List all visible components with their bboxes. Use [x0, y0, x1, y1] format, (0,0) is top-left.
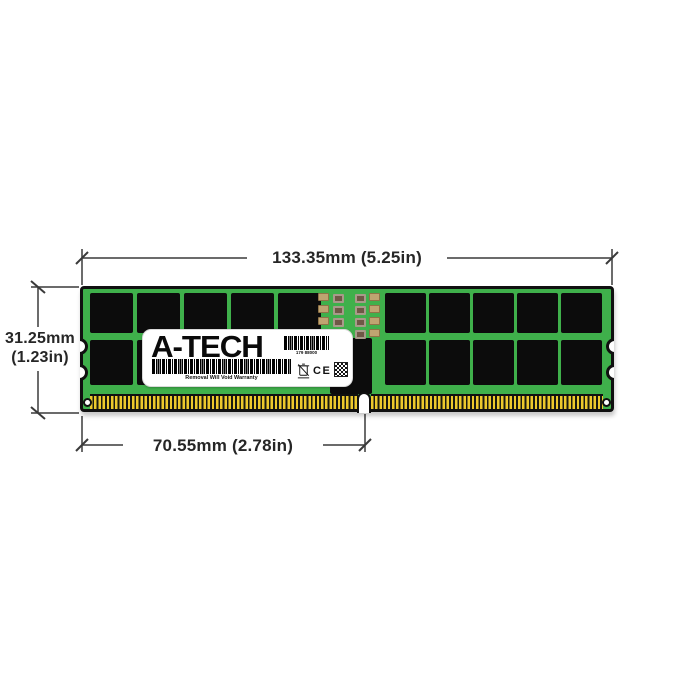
memory-chip [429, 293, 470, 333]
smd-component [369, 293, 380, 301]
smd-component [355, 294, 366, 303]
memory-chip [385, 340, 426, 385]
memory-chip [561, 293, 602, 333]
ce-mark: CE [313, 365, 331, 377]
memory-chip [517, 293, 558, 333]
mounting-hole-left [83, 398, 92, 407]
smd-component [318, 317, 329, 325]
smd-component [355, 330, 366, 339]
product-dimension-diagram: 133.35mm (5.25in) 31.25mm (1.23in) 70.55… [0, 0, 700, 700]
smd-component [369, 305, 380, 313]
height-dimension-label: 31.25mm (1.23in) [1, 329, 79, 367]
memory-chip [561, 340, 602, 385]
smd-component [318, 293, 329, 301]
memory-chip [137, 293, 180, 333]
qr-code-icon [334, 362, 348, 377]
memory-chip [473, 340, 514, 385]
warranty-text: Removal Will Void Warranty [152, 375, 291, 381]
memory-chip [385, 293, 426, 333]
weee-bin-icon [296, 363, 311, 379]
memory-chip [184, 293, 227, 333]
memory-chip [90, 340, 133, 385]
product-sticker: A-TECH 179 88000 Removal Will Void Warra… [142, 329, 353, 387]
smd-component [333, 294, 344, 303]
height-dimension-in: (1.23in) [1, 348, 79, 367]
mounting-hole-right [602, 398, 611, 407]
smd-component [369, 329, 380, 337]
smd-component [333, 306, 344, 315]
smd-component [318, 305, 329, 313]
memory-chip [278, 293, 321, 333]
height-dimension-mm: 31.25mm [1, 329, 79, 348]
main-barcode-icon [152, 359, 291, 374]
smd-component [333, 318, 344, 327]
memory-chip [473, 293, 514, 333]
serial-barcode-icon [284, 336, 329, 350]
pin-offset-dimension-label: 70.55mm (2.78in) [123, 436, 323, 456]
smd-component [355, 318, 366, 327]
memory-chip [231, 293, 274, 333]
memory-chip [429, 340, 470, 385]
width-dimension-label: 133.35mm (5.25in) [247, 248, 447, 268]
pin-key-notch [357, 392, 371, 413]
pin-row-left [90, 394, 358, 409]
serial-number: 179 88000 [284, 350, 329, 355]
smd-component [369, 317, 380, 325]
memory-chip [517, 340, 558, 385]
smd-component [355, 306, 366, 315]
memory-chip [90, 293, 133, 333]
pin-row-right [371, 394, 603, 409]
